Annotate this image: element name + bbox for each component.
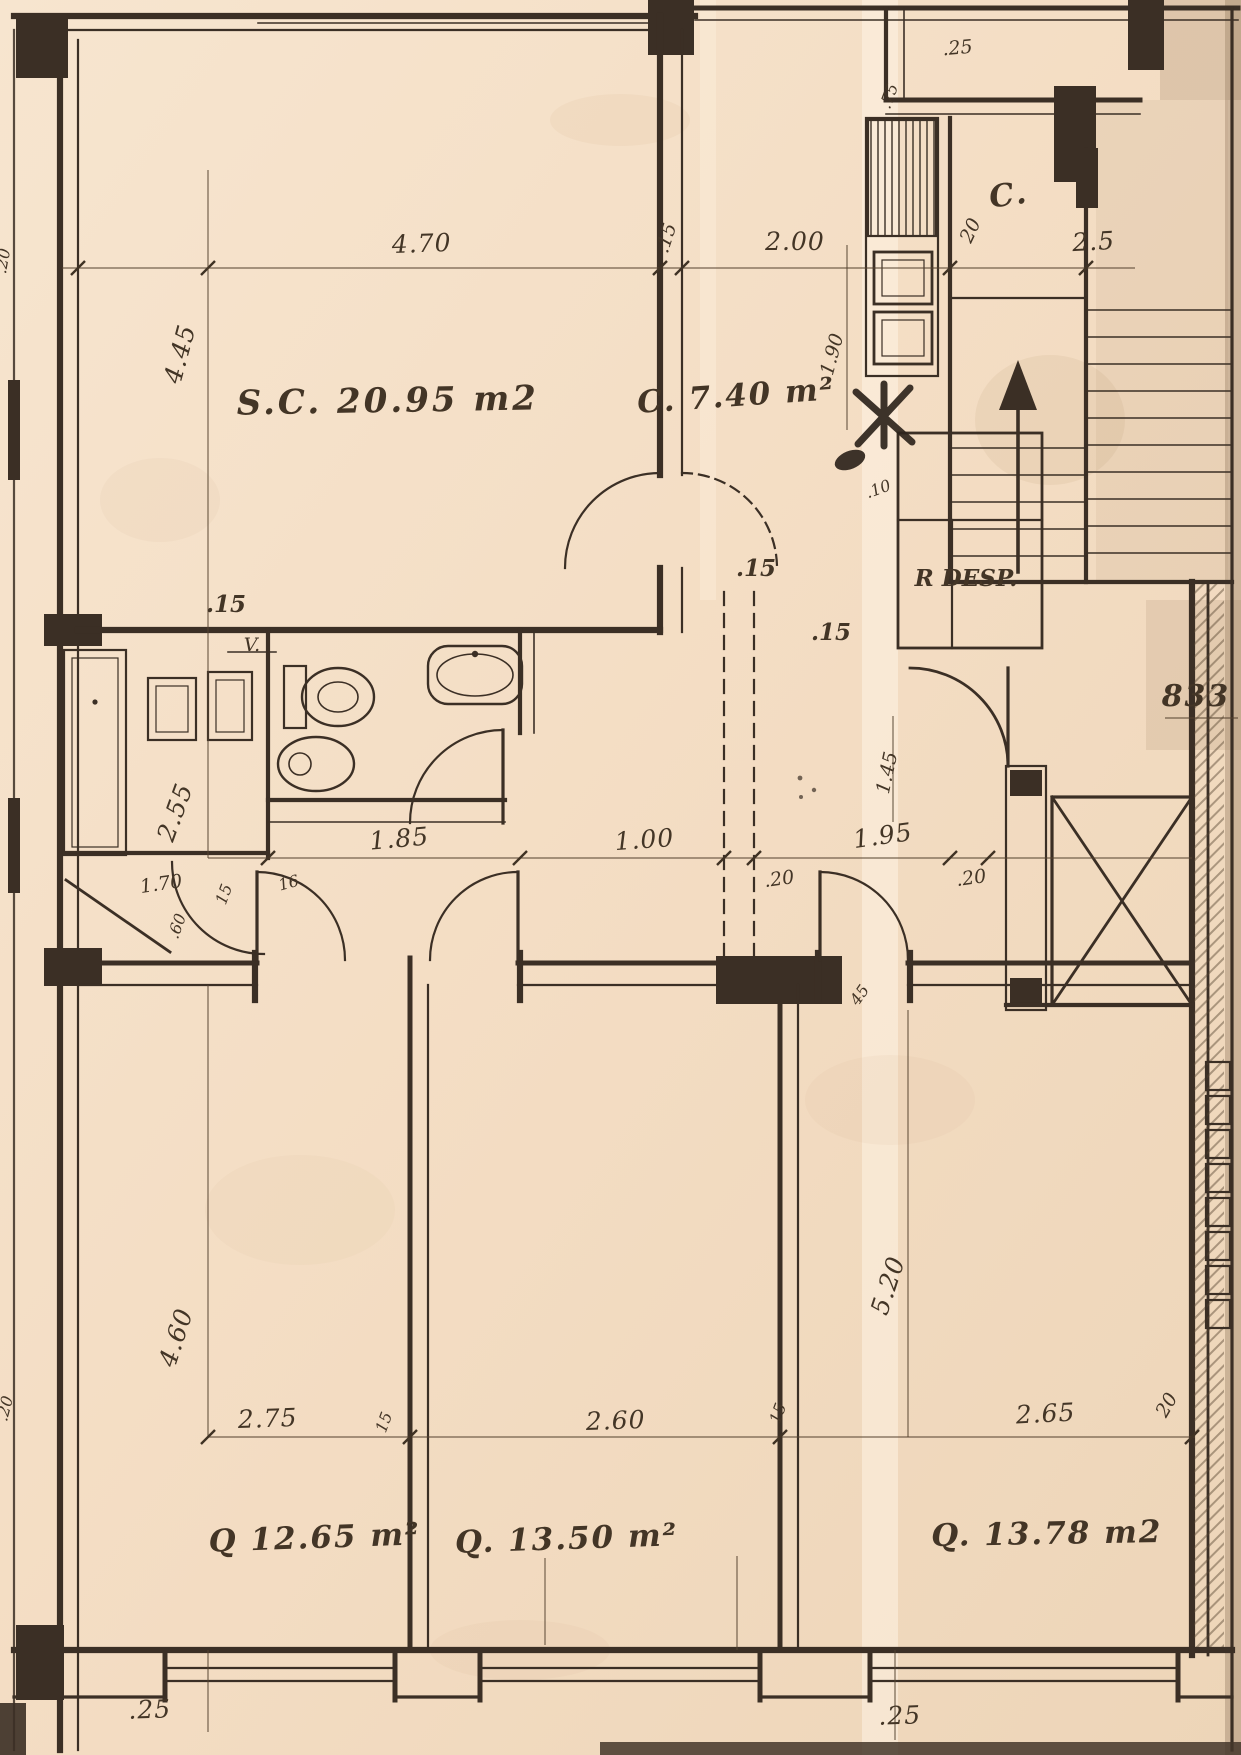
- dim-label: 2.75: [236, 1403, 298, 1434]
- dim-label: .20: [763, 866, 796, 892]
- dim-label: .25: [941, 36, 973, 61]
- dim-label: 4.70: [390, 228, 452, 259]
- dim-label: .20: [955, 865, 988, 891]
- kitchen-sink-icon: [868, 120, 936, 236]
- dim-label: 2.65: [1014, 1397, 1076, 1429]
- room-label-pantry: R DESP.: [914, 565, 1018, 592]
- dim-label: .15: [206, 591, 246, 618]
- dim-label: 1.85: [368, 821, 430, 855]
- room-label-stair-closet: C.: [987, 175, 1031, 216]
- room-label-bedroom1: Q 12.65 m²: [208, 1516, 421, 1559]
- column-center: [648, 0, 694, 55]
- floor-plan-canvas: S.C. 20.95 m2 C. 7.40 m² R DESP. C. Q 12…: [0, 0, 1241, 1755]
- dim-label: 1.00: [614, 823, 676, 856]
- room-label-bedroom3: Q. 13.78 m2: [931, 1514, 1163, 1554]
- dim-label: 2.5: [1070, 226, 1115, 257]
- fold-crease: [862, 0, 898, 1755]
- vent-label: V.: [244, 634, 260, 656]
- column-top-left: [16, 14, 68, 78]
- dim-label: 2.60: [584, 1405, 646, 1436]
- dim-label: .25: [128, 1694, 172, 1724]
- party-wall-hatch: [1194, 584, 1224, 1653]
- dim-label: .15: [811, 619, 851, 646]
- dim-label: .25: [878, 1700, 922, 1730]
- dim-label: 2.00: [764, 227, 825, 256]
- column-bottom-left: [16, 1625, 64, 1700]
- floor-plan-page: S.C. 20.95 m2 C. 7.40 m² R DESP. C. Q 12…: [0, 0, 1241, 1755]
- street-number: 833: [1161, 679, 1231, 714]
- paper-background: [0, 0, 1241, 1755]
- room-label-living: S.C. 20.95 m2: [236, 378, 539, 423]
- dim-label: .15: [736, 555, 776, 582]
